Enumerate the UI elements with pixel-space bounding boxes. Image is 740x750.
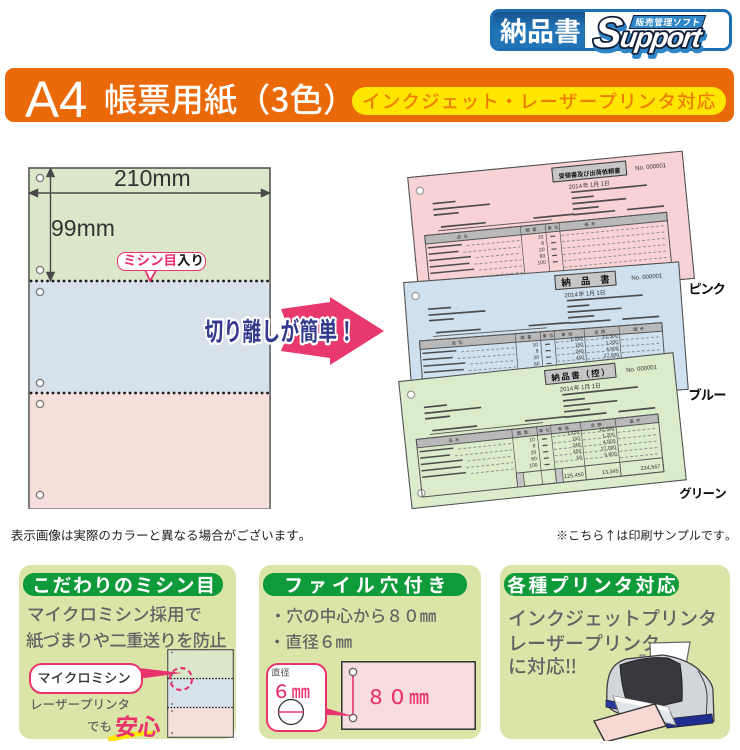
svg-text:10: 10 bbox=[538, 234, 544, 241]
svg-text:150: 150 bbox=[571, 435, 580, 442]
svg-text:210mm: 210mm bbox=[114, 167, 191, 191]
svg-text:20: 20 bbox=[539, 246, 545, 253]
svg-text:8: 8 bbox=[535, 348, 538, 354]
svg-text:10: 10 bbox=[529, 437, 535, 444]
svg-text:60: 60 bbox=[539, 253, 545, 260]
svg-text:5,800: 5,800 bbox=[604, 451, 617, 458]
svg-text:240: 240 bbox=[572, 442, 581, 449]
svg-text:100: 100 bbox=[529, 462, 538, 469]
svg-text:20: 20 bbox=[530, 449, 536, 456]
svg-text:58: 58 bbox=[576, 454, 582, 461]
svg-text:2014: 2014 bbox=[564, 292, 578, 299]
svg-text:100: 100 bbox=[537, 259, 546, 266]
svg-text:60: 60 bbox=[531, 456, 537, 463]
svg-text:2014: 2014 bbox=[560, 386, 575, 393]
svg-text:13,345: 13,345 bbox=[602, 468, 619, 476]
svg-text:450: 450 bbox=[573, 448, 582, 455]
svg-text:99mm: 99mm bbox=[51, 215, 115, 241]
svg-text:2014: 2014 bbox=[569, 183, 584, 190]
